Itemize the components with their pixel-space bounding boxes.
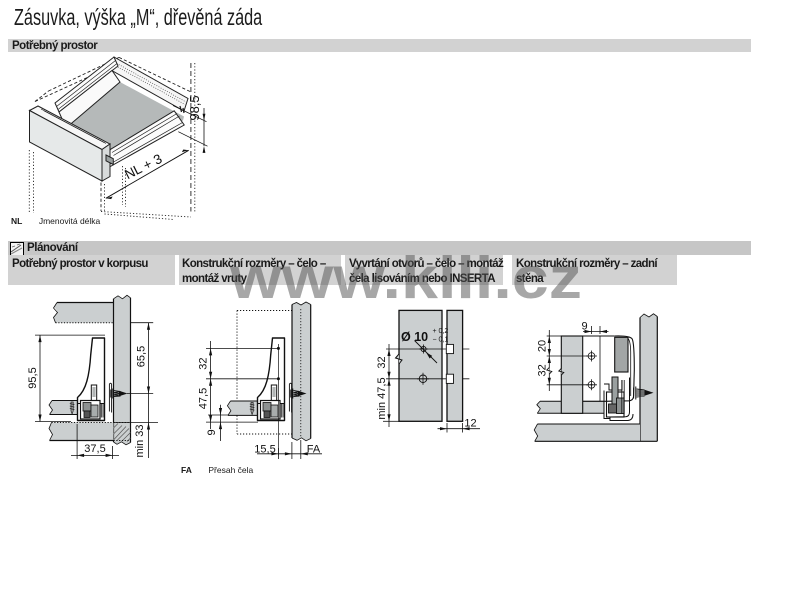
svg-text:65,5: 65,5: [136, 346, 148, 367]
svg-text:15,5: 15,5: [254, 444, 275, 456]
svg-text:32: 32: [198, 357, 210, 369]
svg-text:Ø 10: Ø 10: [401, 330, 428, 344]
svg-text:12: 12: [464, 418, 476, 430]
svg-text:FA: FA: [307, 444, 321, 456]
svg-text:37,5: 37,5: [84, 443, 105, 455]
svg-text:min 47,5: min 47,5: [376, 377, 388, 419]
svg-text:9: 9: [581, 321, 587, 333]
svg-text:9: 9: [206, 429, 218, 435]
svg-text:min 33: min 33: [134, 424, 146, 457]
svg-text:98,5: 98,5: [187, 95, 202, 120]
svg-text:32: 32: [376, 356, 388, 368]
svg-text:95,5: 95,5: [27, 367, 39, 388]
svg-text:20: 20: [536, 340, 548, 352]
svg-text:+ 0,2: + 0,2: [433, 328, 449, 335]
svg-text:32: 32: [536, 364, 548, 376]
svg-text:47,5: 47,5: [198, 388, 210, 409]
svg-text:− 0,1: − 0,1: [433, 337, 449, 344]
